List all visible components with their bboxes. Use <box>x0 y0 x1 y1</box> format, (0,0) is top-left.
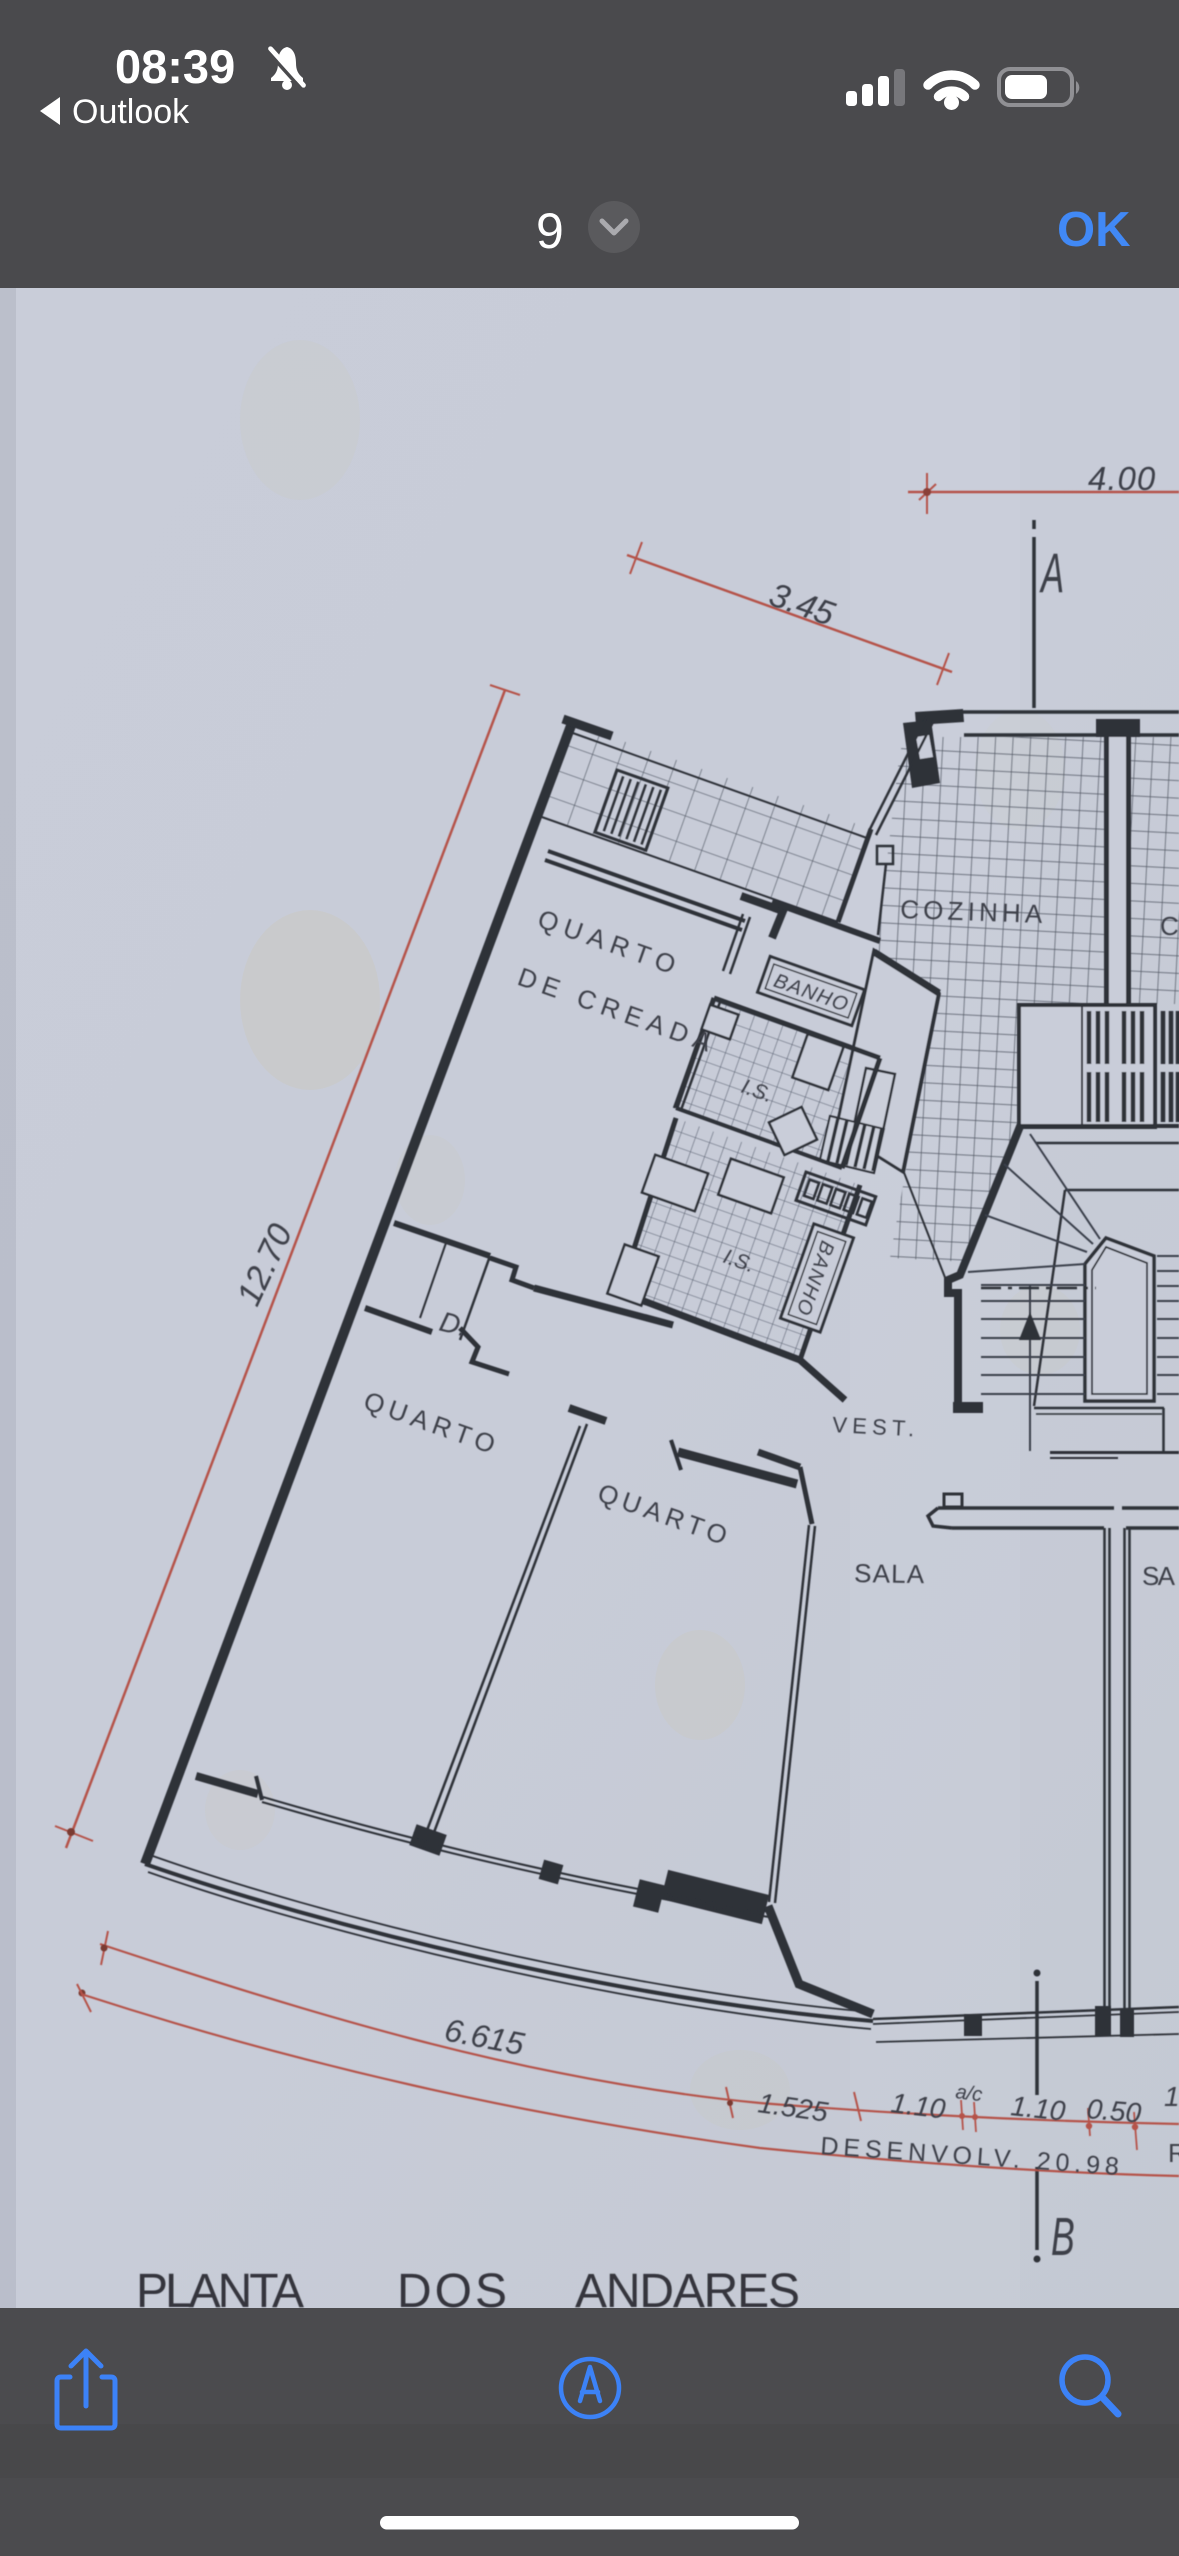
svg-text:4.00: 4.00 <box>1088 460 1156 497</box>
svg-text:R: R <box>1168 2138 1179 2168</box>
svg-text:VEST.: VEST. <box>832 1412 919 1441</box>
svg-text:1: 1 <box>1164 2081 1179 2112</box>
svg-text:COZINHA: COZINHA <box>900 894 1049 929</box>
svg-text:1.10: 1.10 <box>1009 2090 1067 2127</box>
svg-text:08:39: 08:39 <box>115 40 235 93</box>
svg-text:a/c: a/c <box>954 2081 983 2106</box>
svg-text:B: B <box>1051 2207 1075 2267</box>
svg-text:SA: SA <box>1142 1561 1179 1591</box>
svg-text:A: A <box>1039 542 1064 605</box>
svg-text:Outlook: Outlook <box>72 93 190 131</box>
svg-text:9: 9 <box>536 203 564 259</box>
svg-text:C: C <box>1160 911 1179 941</box>
svg-text:0.50: 0.50 <box>1085 2093 1142 2129</box>
svg-text:SALA: SALA <box>854 1558 929 1589</box>
svg-text:OK: OK <box>1057 203 1131 257</box>
